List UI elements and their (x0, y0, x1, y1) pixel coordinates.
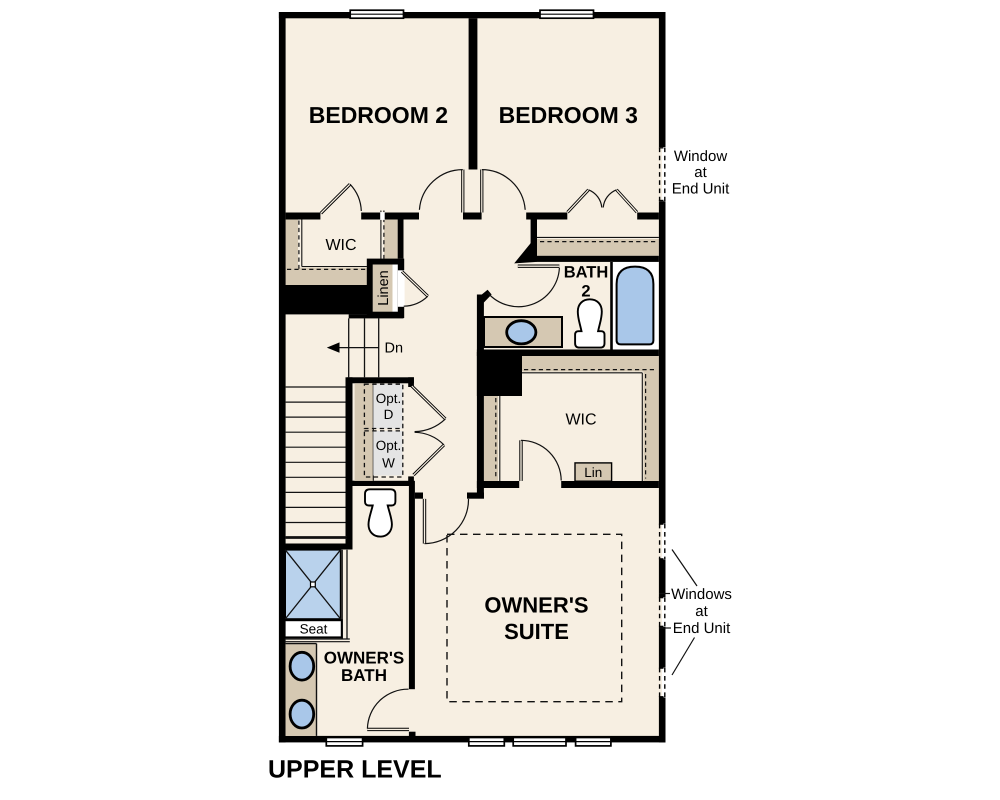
svg-text:WIC: WIC (325, 237, 356, 254)
svg-text:Dn: Dn (385, 341, 404, 357)
svg-text:BATH: BATH (564, 264, 609, 282)
svg-text:Seat: Seat (300, 622, 328, 637)
svg-text:OWNER'S: OWNER'S (484, 593, 588, 618)
svg-text:Opt.: Opt. (376, 438, 402, 453)
svg-text:UPPER LEVEL: UPPER LEVEL (268, 755, 442, 783)
svg-text:2: 2 (581, 283, 590, 301)
svg-text:W: W (382, 456, 395, 471)
svg-text:Window: Window (674, 148, 728, 165)
svg-text:Linen: Linen (376, 270, 392, 305)
svg-text:BATH: BATH (341, 666, 387, 685)
svg-text:BEDROOM 2: BEDROOM 2 (309, 102, 448, 128)
svg-text:BEDROOM 3: BEDROOM 3 (499, 102, 638, 128)
svg-text:D: D (384, 407, 394, 422)
svg-text:at: at (695, 603, 708, 620)
svg-text:End Unit: End Unit (673, 620, 731, 637)
svg-text:Lin: Lin (584, 465, 602, 480)
svg-text:at: at (694, 164, 707, 181)
svg-text:WIC: WIC (565, 412, 596, 429)
svg-text:Windows: Windows (671, 586, 732, 603)
svg-text:SUITE: SUITE (504, 619, 569, 644)
svg-text:Opt.: Opt. (376, 391, 402, 406)
svg-text:OWNER'S: OWNER'S (324, 648, 405, 667)
svg-text:End Unit: End Unit (672, 181, 730, 198)
